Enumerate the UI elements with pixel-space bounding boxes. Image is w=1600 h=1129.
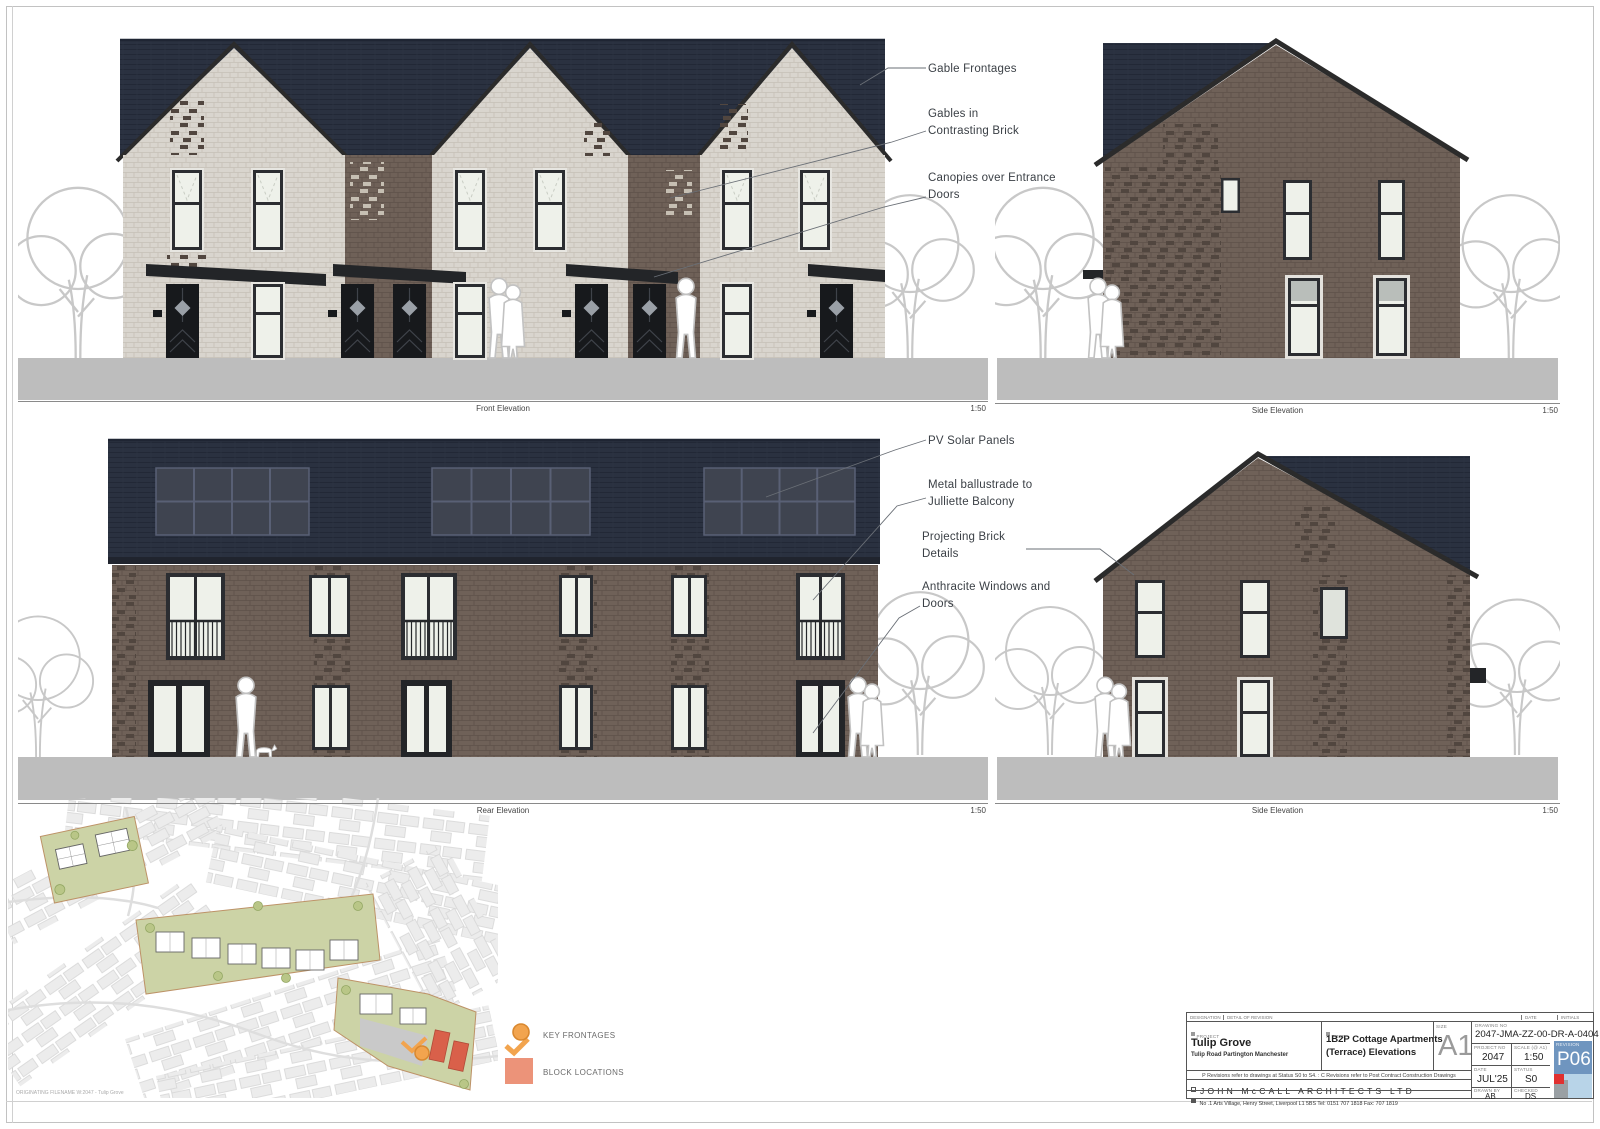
key-frontages-icon [500, 1020, 538, 1060]
block-locations-swatch [505, 1058, 533, 1084]
drawing-info-box: DRAWING No 2047-JMA-ZZ-00-DR-A-0404 PROJ… [1471, 1022, 1593, 1098]
caption-scale: 1:50 [1542, 406, 1558, 415]
originating-filename-note: ORIGINATING FILENAME W:2047 - Tulip Grov… [16, 1090, 124, 1096]
date-col-label: DATE [1521, 1015, 1537, 1020]
firm-address: No .1 Arts Village, Henry Street, Liverp… [1200, 1101, 1398, 1107]
annotation-gable-frontages: Gable Frontages [928, 61, 1068, 78]
caption-text: Front Elevation [476, 404, 530, 413]
title-block: DESIGNATION DETAIL OF REVISION DATE INIT… [1186, 1012, 1594, 1099]
side-elevation-top-caption: Side Elevation 1:50 [995, 403, 1560, 415]
rear-elevation-caption: Rear Elevation 1:50 [18, 803, 988, 815]
people [1088, 278, 1123, 358]
date-cell: DATE JUL'25 [1472, 1065, 1511, 1087]
drawn-value: AB [1485, 1092, 1496, 1101]
size-cell: SIZE A1 [1433, 1022, 1471, 1070]
sheet-size: A1 [1438, 1030, 1473, 1063]
annotation-anthracite: Anthracite Windows and Doors [922, 579, 1064, 614]
caption-scale: 1:50 [970, 806, 986, 815]
side-elevation-bottom-drawing [995, 425, 1560, 810]
wall-block [1470, 668, 1486, 683]
front-elevation-drawing [18, 12, 988, 412]
revision-cell: REVISION P06 [1554, 1041, 1592, 1074]
caption-scale: 1:50 [1542, 806, 1558, 815]
date-label: DATE [1474, 1067, 1487, 1072]
checked-value: DS [1525, 1092, 1536, 1101]
initials-col-label: INITIALS [1557, 1015, 1579, 1020]
project-name: Tulip Grove [1191, 1037, 1251, 1049]
checked-cell: CHECKED DS [1511, 1087, 1550, 1098]
front-elevation-caption: Front Elevation 1:50 [18, 401, 988, 413]
pv-solar-panels [156, 468, 855, 535]
logo-red-square [1554, 1074, 1564, 1084]
status-value: S0 [1525, 1074, 1537, 1085]
caption-text: Side Elevation [1252, 406, 1303, 415]
scale-cell: SCALE (@ A1) 1:50 [1511, 1043, 1550, 1065]
project-title-box: PROJECT Tulip Grove Tulip Road Partingto… [1187, 1022, 1471, 1070]
ground-strip [997, 358, 1558, 400]
project-no-label: PROJECT No [1474, 1045, 1506, 1050]
annotation-projecting-brick: Projecting Brick Details [922, 529, 1022, 564]
rear-wall [112, 565, 878, 757]
people [1095, 677, 1130, 757]
ground-strip [18, 757, 988, 800]
caption-scale: 1:50 [970, 404, 986, 413]
ground-strip [997, 757, 1558, 800]
date-value: JUL'25 [1477, 1074, 1508, 1085]
project-address: Tulip Road Partington Manchester [1191, 1052, 1288, 1058]
status-cell: STATUS S0 [1511, 1065, 1550, 1087]
annotation-canopies: Canopies over Entrance Doors [928, 170, 1066, 205]
project-no-cell: PROJECT No 2047 [1472, 1043, 1511, 1065]
firm-address-row: No .1 Arts Village, Henry Street, Liverp… [1187, 1090, 1471, 1098]
drawing-title-line1: 1B2P Cottage Apartments [1326, 1034, 1443, 1045]
revision-strip: DESIGNATION DETAIL OF REVISION DATE INIT… [1187, 1013, 1593, 1022]
title-cell: TITLE 1B2P Cottage Apartments (Terrace) … [1321, 1022, 1433, 1070]
annotation-pv-panels: PV Solar Panels [928, 433, 1068, 450]
project-no: 2047 [1482, 1052, 1504, 1063]
firm-name-row: JOHN McCALL ARCHITECTS LTD [1187, 1079, 1471, 1090]
drawing-no: 2047-JMA-ZZ-00-DR-A-0404 [1475, 1029, 1599, 1040]
site-plan [8, 798, 498, 1098]
drawing-no-label: DRAWING No [1475, 1023, 1507, 1028]
size-label: SIZE [1436, 1024, 1447, 1029]
revision-label: REVISION [1556, 1042, 1580, 1047]
revisions-note: P Revisions refer to drawings at Status … [1187, 1070, 1471, 1079]
caption-text: Rear Elevation [477, 806, 529, 815]
revision-value: P06 [1557, 1049, 1591, 1071]
annotation-balustrade: Metal ballustrade to Julliette Balcony [928, 477, 1053, 512]
status-label: STATUS [1514, 1067, 1533, 1072]
side-elevation-bottom-caption: Side Elevation 1:50 [995, 803, 1560, 815]
scale-label: SCALE (@ A1) [1514, 1045, 1547, 1050]
annotation-contrasting-brick: Gables in Contrasting Brick [928, 106, 1038, 141]
firm-logo-mark [1554, 1074, 1592, 1098]
block-locations-label: BLOCK LOCATIONS [543, 1068, 624, 1077]
rear-elevation-drawing [18, 425, 988, 810]
detail-of-revision-label: DETAIL OF REVISION [1223, 1015, 1273, 1020]
drawn-cell: DRAWN BY AB [1472, 1087, 1511, 1098]
caption-text: Side Elevation [1252, 806, 1303, 815]
ground-strip [18, 358, 988, 400]
drawing-title-line2: (Terrace) Elevations [1326, 1047, 1416, 1058]
project-label-icon [1191, 1032, 1195, 1036]
key-frontages-label: KEY FRONTAGES [543, 1031, 615, 1040]
firm-address-icon [1191, 1099, 1196, 1104]
side-elevation-top-drawing [995, 12, 1560, 412]
wall-ledge [1083, 270, 1103, 279]
scale-value: 1:50 [1524, 1052, 1543, 1063]
designation-label: DESIGNATION [1190, 1015, 1221, 1020]
drawing-sheet: Front Elevation 1:50 Side Elevation 1:50… [0, 0, 1600, 1129]
